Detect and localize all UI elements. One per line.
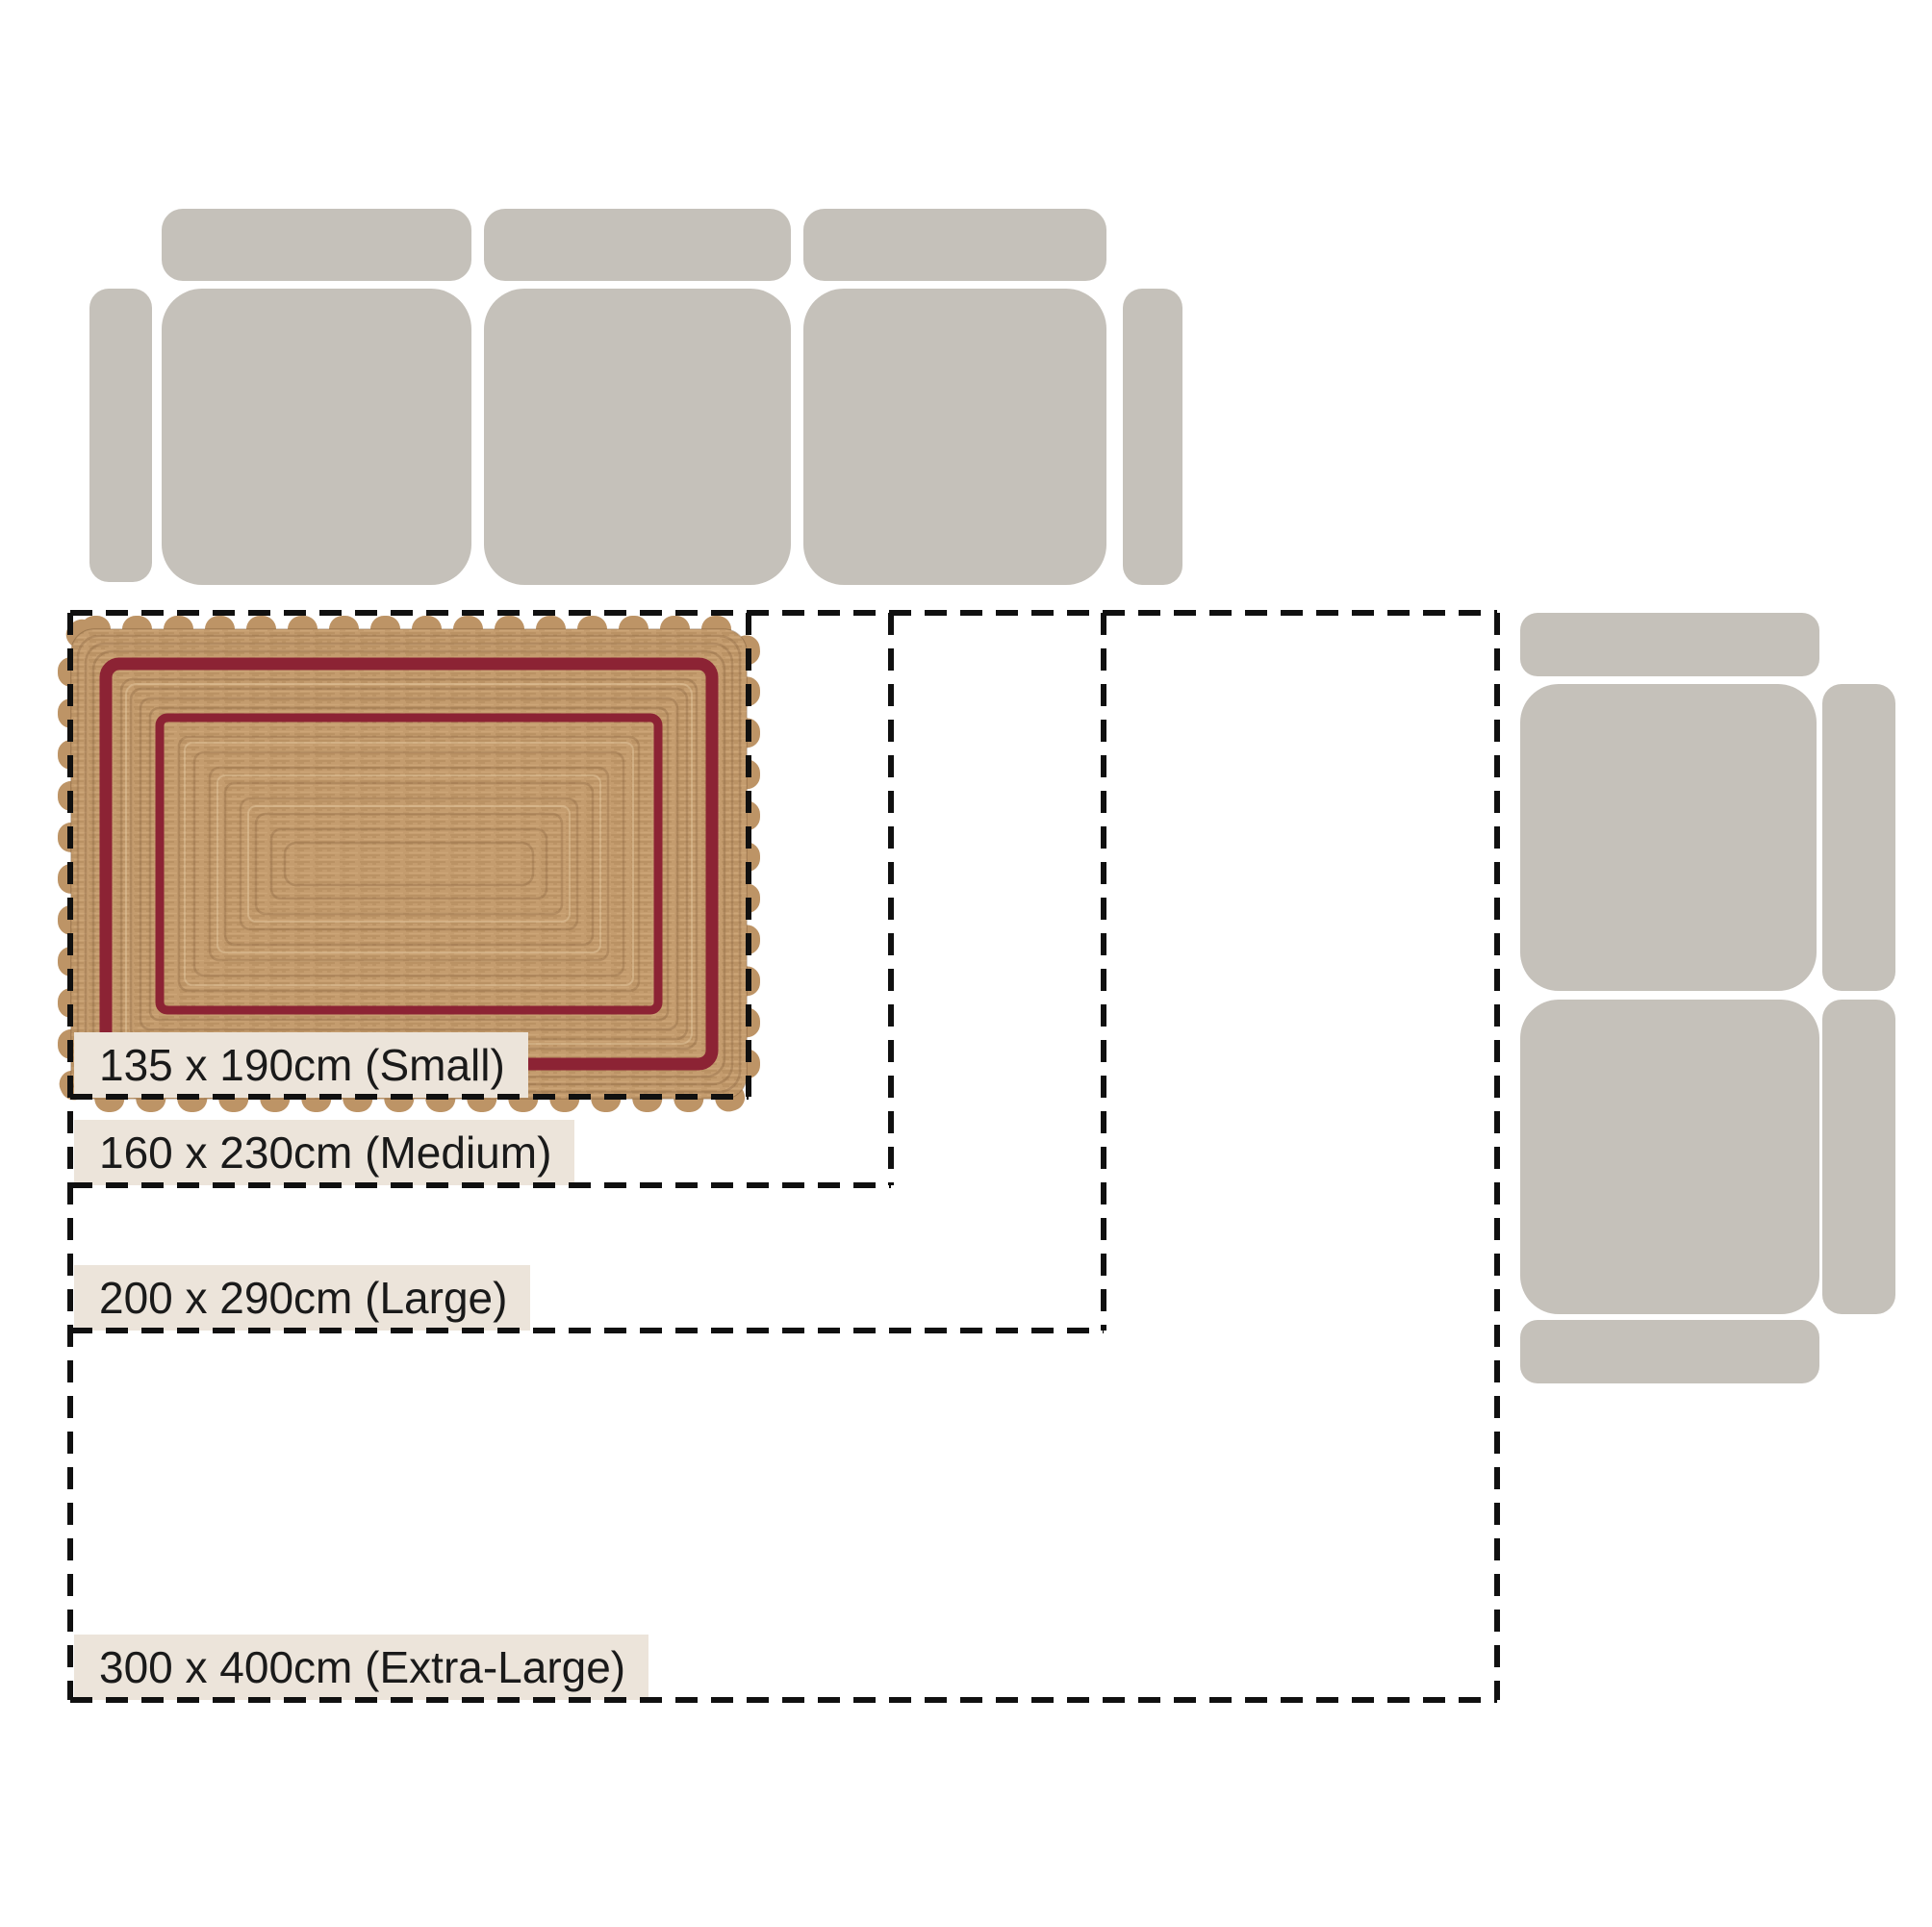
sectional-back-cushion-1 xyxy=(1822,684,1895,991)
sofa-top-seat-cushion-2 xyxy=(484,289,791,585)
sofa-top-armrest-left xyxy=(89,289,152,582)
sofa-top-back-cushion-1 xyxy=(162,209,471,281)
size-label-large: 200 x 290cm (Large) xyxy=(74,1265,530,1331)
sofa-top xyxy=(89,209,1182,585)
sectional-back-cushion-2 xyxy=(1822,1000,1895,1314)
sectional-seat-cushion-2 xyxy=(1520,1000,1819,1314)
sofa-top-armrest-right xyxy=(1123,289,1182,585)
rug-photo xyxy=(71,629,747,1099)
size-label-extra-large: 300 x 400cm (Extra-Large) xyxy=(74,1635,648,1700)
sofa-top-seat-cushion-1 xyxy=(162,289,471,585)
sectional-armrest-top xyxy=(1520,613,1819,676)
rug-size-guide-diagram: 135 x 190cm (Small) 160 x 230cm (Medium)… xyxy=(0,0,1932,1927)
size-label-small: 135 x 190cm (Small) xyxy=(74,1032,528,1098)
sofa-top-back-cushion-2 xyxy=(484,209,791,281)
sectional-seat-cushion-1 xyxy=(1520,684,1817,991)
sofa-top-back-cushion-3 xyxy=(803,209,1106,281)
sectional-armrest-bottom xyxy=(1520,1320,1819,1383)
size-label-medium: 160 x 230cm (Medium) xyxy=(74,1120,574,1185)
sofa-right-sectional xyxy=(1520,613,1895,1383)
sofa-top-seat-cushion-3 xyxy=(803,289,1106,585)
